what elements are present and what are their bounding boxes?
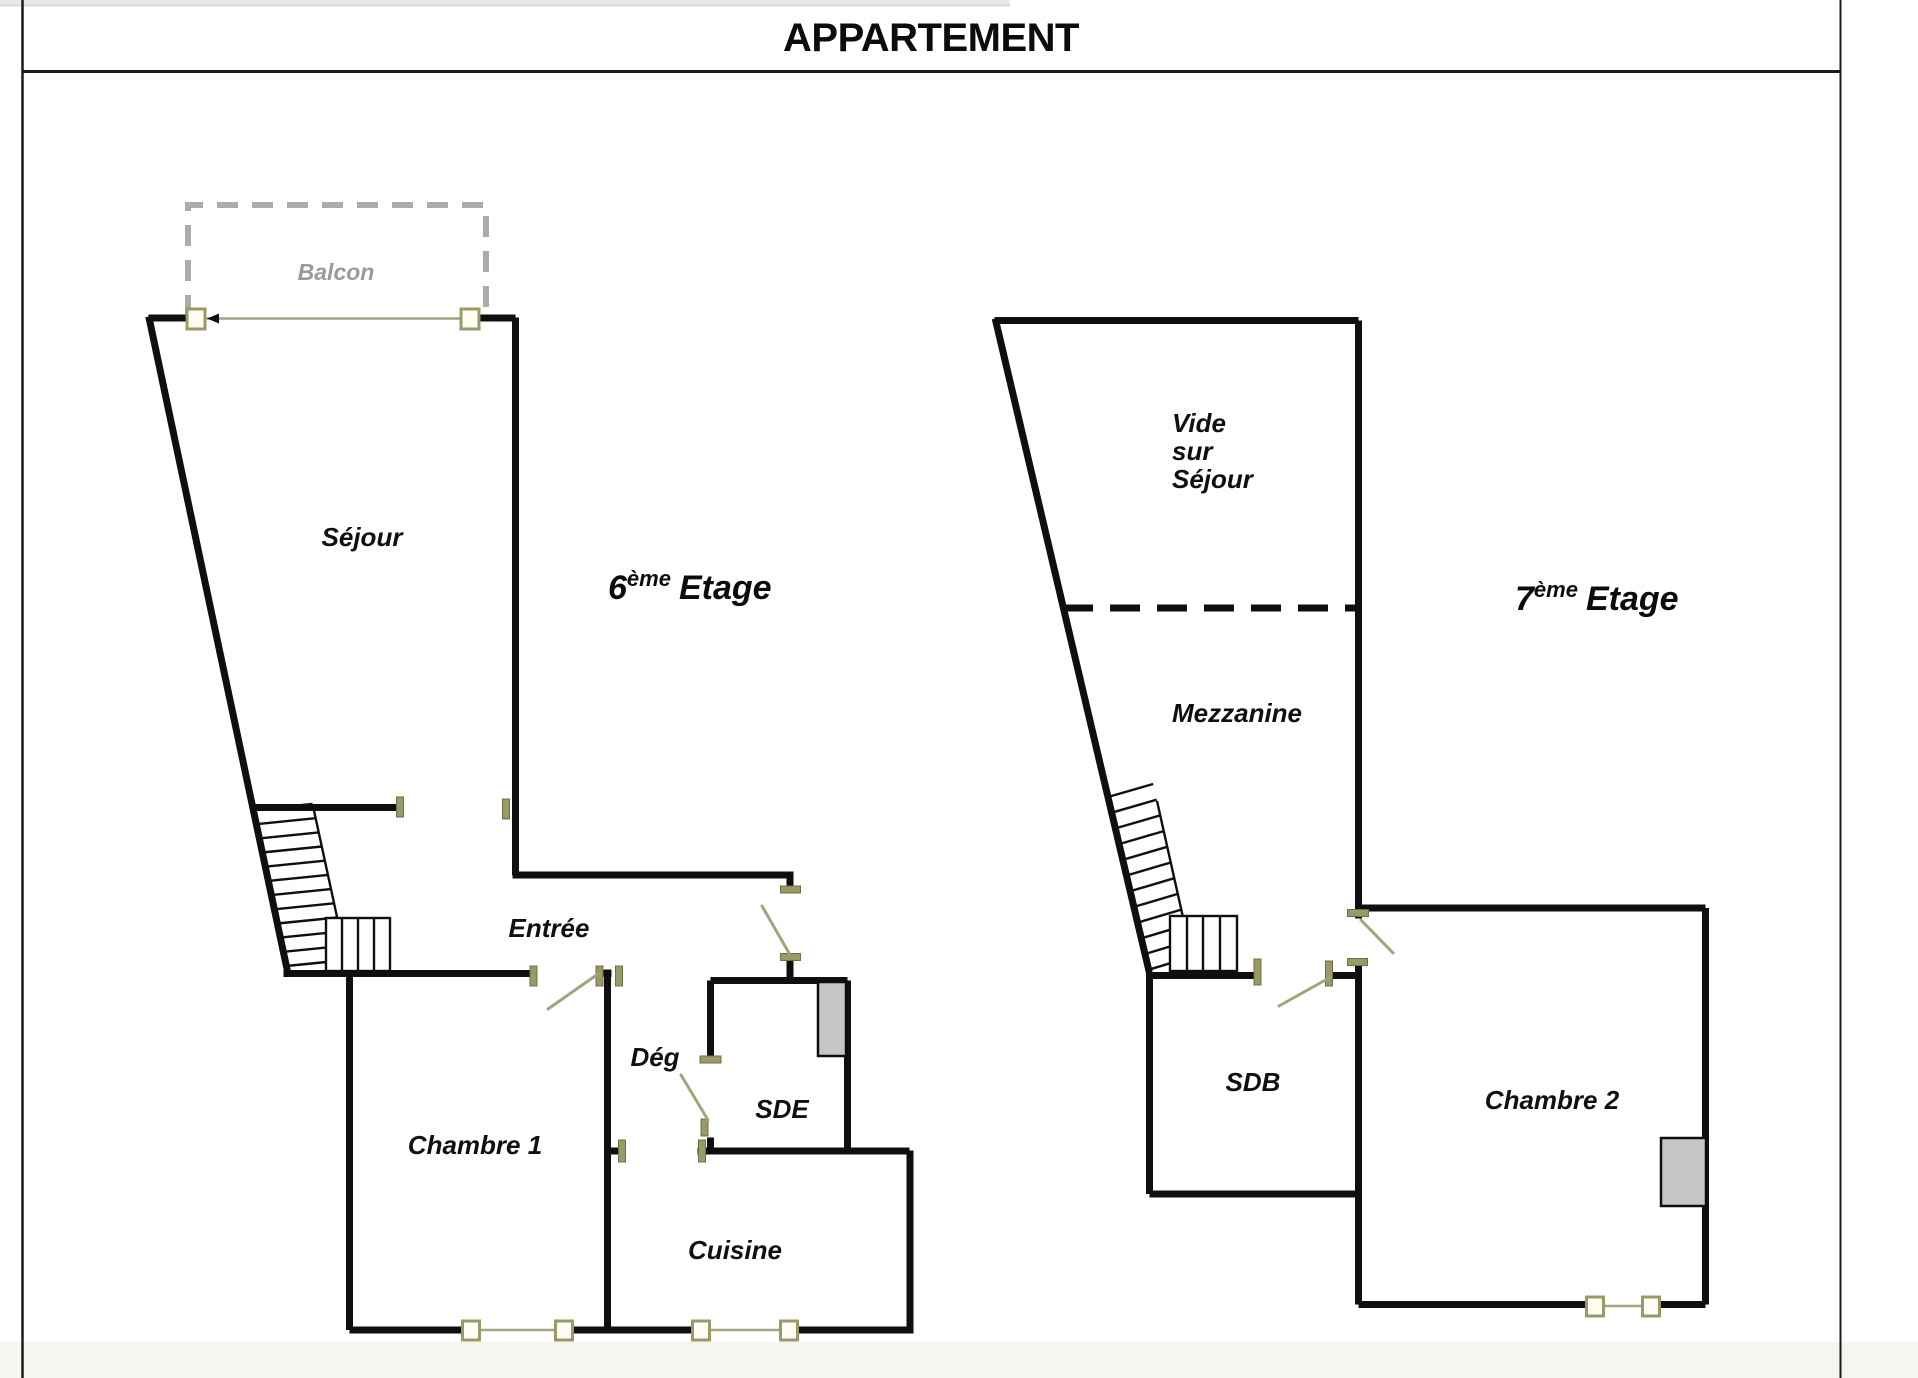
window-end-square xyxy=(693,1321,710,1340)
floor7-label-number: 7 xyxy=(1515,580,1536,618)
door-jamb xyxy=(1254,959,1261,985)
vide-line3: Séjour xyxy=(1172,464,1255,494)
door-jamb xyxy=(1348,959,1368,966)
door-jamb xyxy=(781,886,801,893)
door-jamb xyxy=(699,1140,706,1162)
window-end-square xyxy=(463,1321,480,1340)
floor-plan-drawing: APPARTEMENT xyxy=(0,0,1918,1378)
room-label-balcon: Balcon xyxy=(298,259,375,285)
room-label-deg: Dég xyxy=(630,1042,679,1072)
floor6-label-number: 6 xyxy=(608,569,628,607)
door-jamb xyxy=(503,799,510,819)
window-end-square xyxy=(461,309,479,329)
radiator-fixture xyxy=(1661,1138,1706,1206)
window-end-square xyxy=(1587,1297,1604,1316)
room-label-sde: SDE xyxy=(755,1094,809,1124)
room-label-sdb: SDB xyxy=(1226,1067,1281,1097)
door-jamb xyxy=(619,1140,626,1162)
top-edge-strip xyxy=(0,0,1010,5)
door-jamb xyxy=(701,1119,708,1136)
floor6-label-sup: ème xyxy=(627,566,671,591)
door-jamb xyxy=(616,966,623,986)
room-label-chambre2: Chambre 2 xyxy=(1485,1085,1620,1115)
page-bottom-shade xyxy=(0,1342,1918,1378)
room-label-cuisine: Cuisine xyxy=(688,1235,782,1265)
page-title: APPARTEMENT xyxy=(783,16,1079,60)
floor6-label-word: Etage xyxy=(679,569,772,607)
room-label-chambre1: Chambre 1 xyxy=(408,1130,542,1160)
window-end-square xyxy=(1643,1297,1660,1316)
vide-line2: sur xyxy=(1172,436,1214,466)
window-end-square xyxy=(781,1321,798,1340)
door-jamb xyxy=(781,954,801,961)
room-label-entree: Entrée xyxy=(509,913,590,943)
floor7-label-sup: ème xyxy=(1534,577,1578,602)
vide-line1: Vide xyxy=(1172,408,1226,438)
floor-plan-page: APPARTEMENT xyxy=(0,0,1918,1378)
shower-fixture xyxy=(818,982,846,1056)
door-jamb xyxy=(530,966,537,986)
room-label-mezzanine: Mezzanine xyxy=(1172,698,1302,728)
door-jamb xyxy=(700,1056,721,1063)
floor7-label-word: Etage xyxy=(1586,580,1679,618)
window-end-square xyxy=(187,309,205,329)
room-label-sejour: Séjour xyxy=(322,522,405,552)
door-jamb xyxy=(1348,910,1369,917)
door-jamb xyxy=(397,797,404,817)
window-end-square xyxy=(556,1321,573,1340)
door-jamb xyxy=(1326,961,1333,986)
